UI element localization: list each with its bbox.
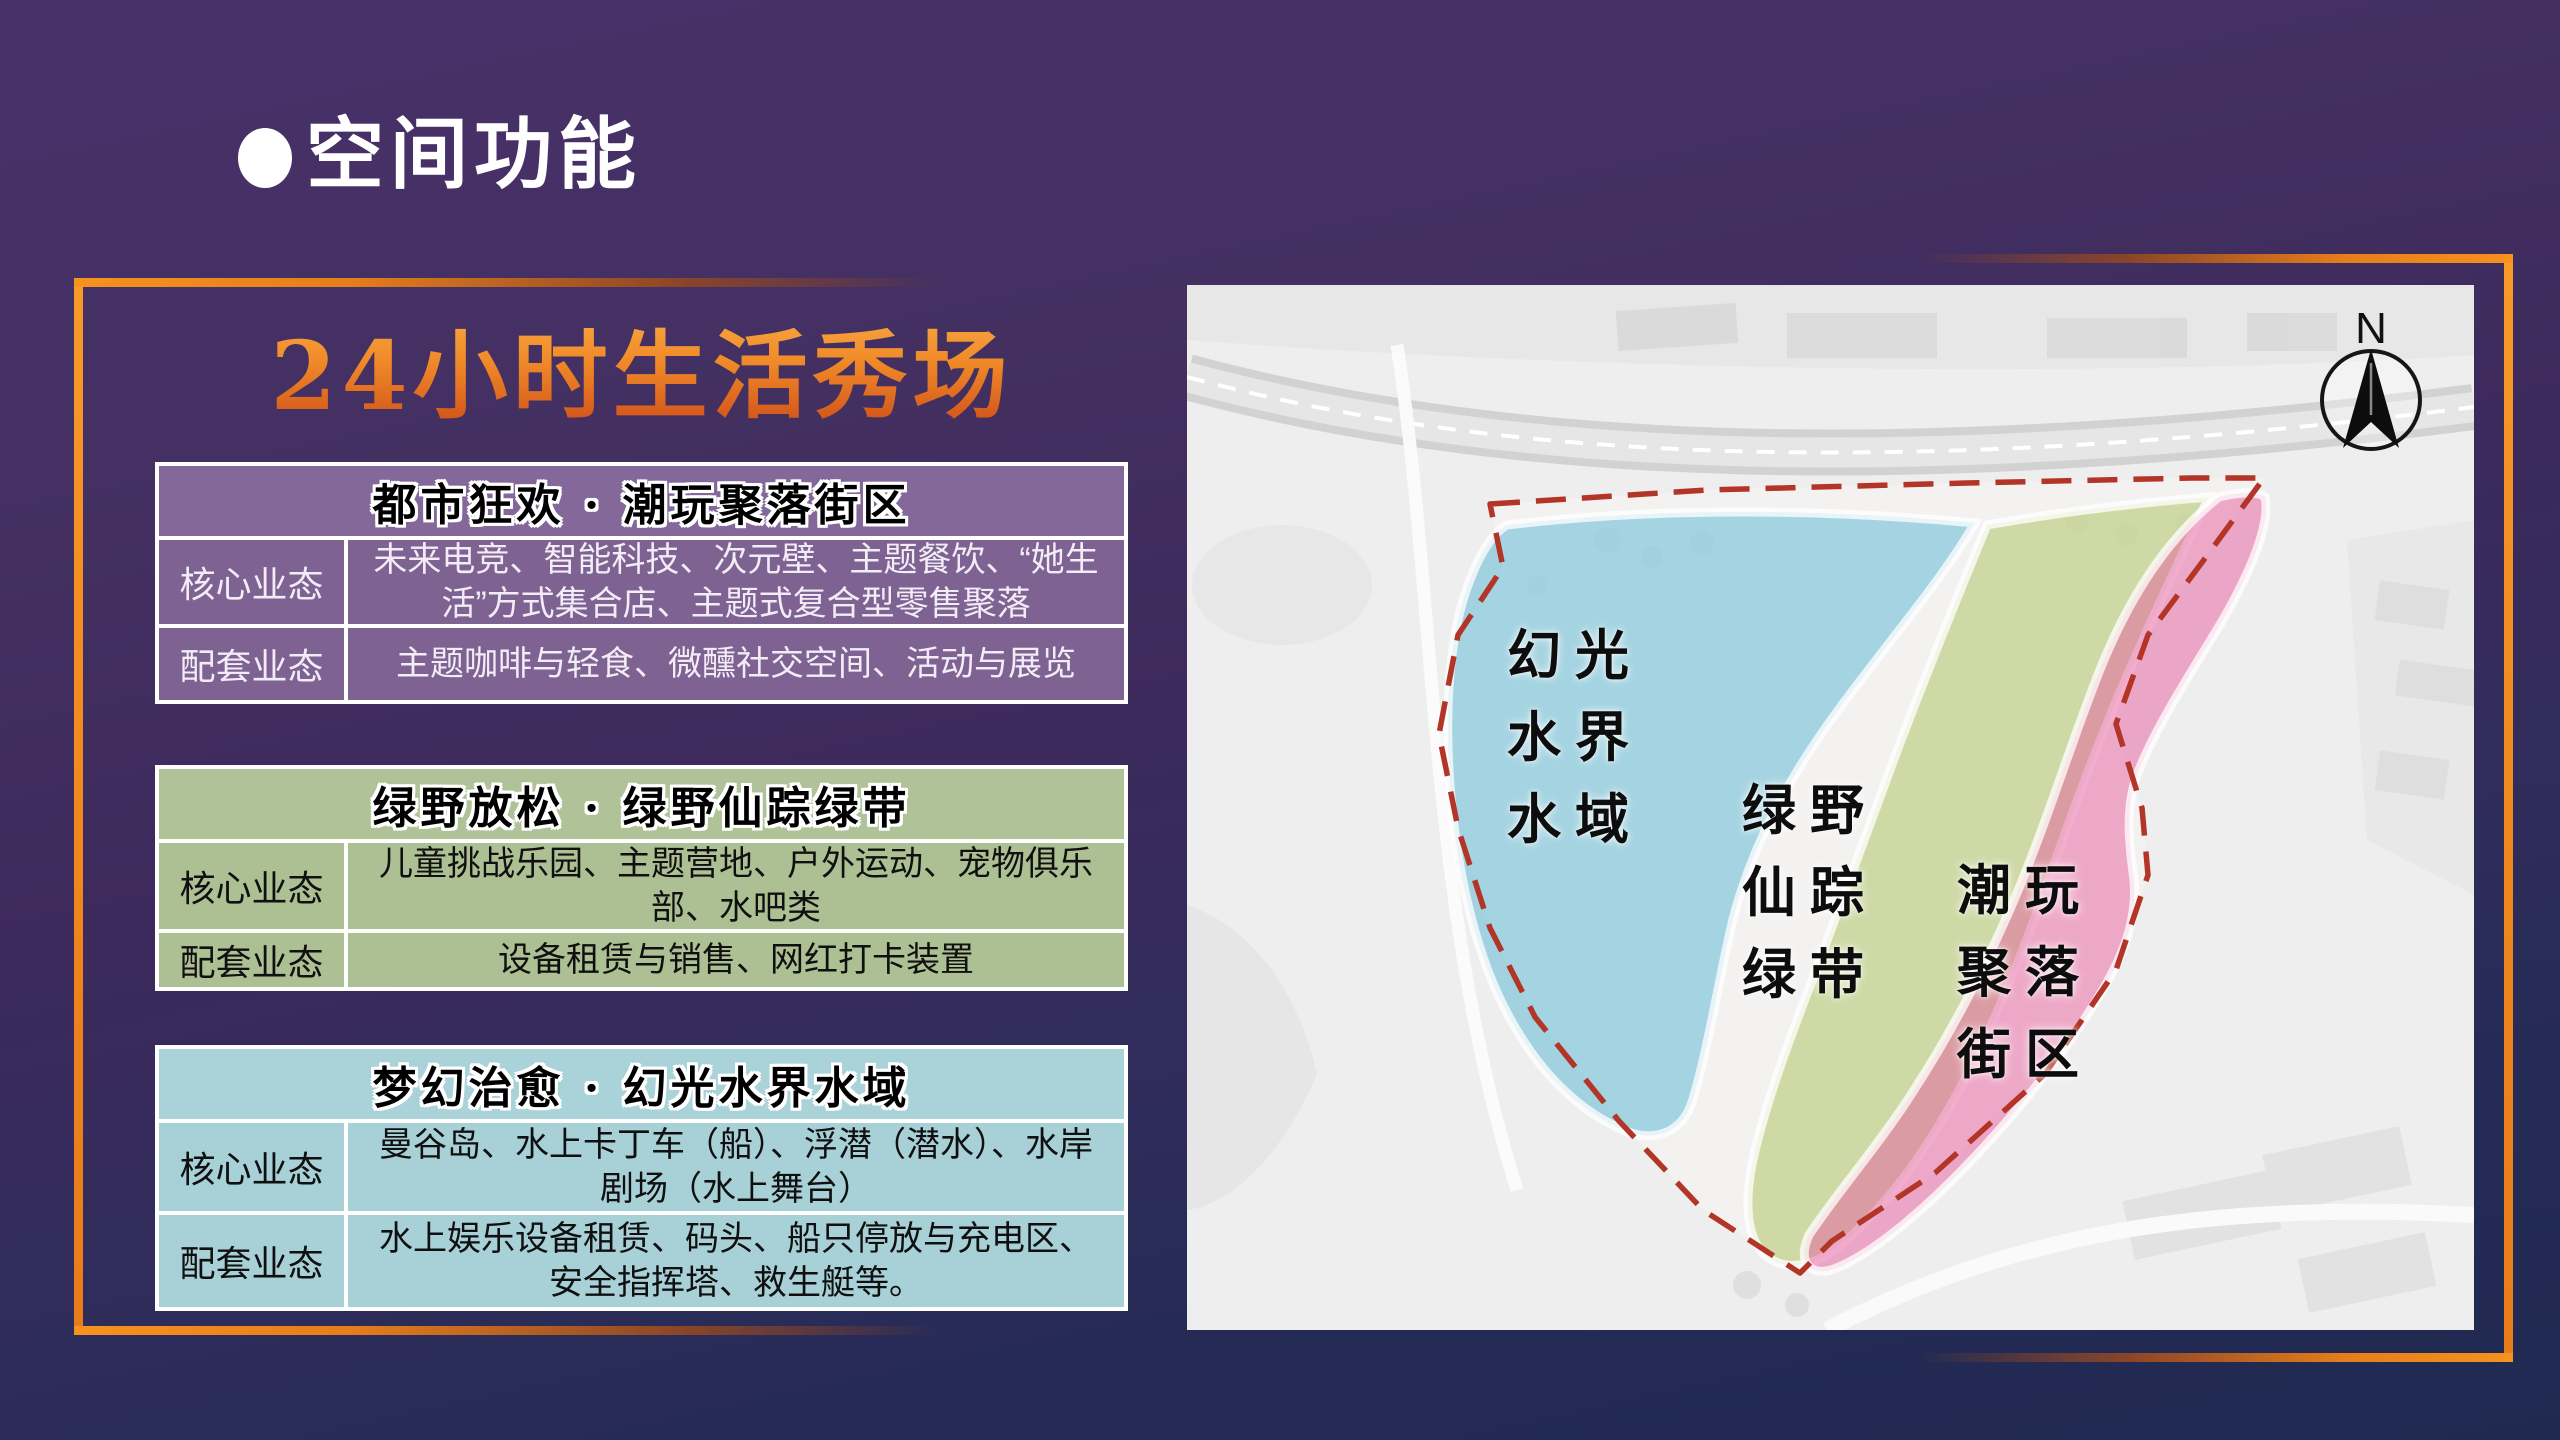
zone-label-line: 幻光 (1507, 614, 1643, 696)
row-label: 核心业态 (159, 540, 344, 624)
compass-north-label: N (2355, 304, 2387, 353)
frame-top-left-border (74, 278, 974, 287)
row-content: 主题咖啡与轻食、微醺社交空间、活动与展览 (348, 628, 1124, 700)
row-label: 配套业态 (159, 1215, 344, 1307)
frame-top-right-border (1920, 254, 2513, 263)
frame-bottom-right-border (1920, 1353, 2513, 1362)
row-content: 未来电竞、智能科技、次元壁、主题餐饮、“她生活”方式集合店、主题式复合型零售聚落 (348, 540, 1124, 624)
zone-label-water: 幻光 水界 水域 (1507, 614, 1643, 860)
frame-bottom-left-border (74, 1326, 974, 1335)
zone-label-line: 水域 (1507, 778, 1643, 860)
frame-left-border (74, 278, 83, 1335)
zone-label-line: 水界 (1507, 696, 1643, 778)
section-title: 空间功能 (306, 92, 642, 204)
row-label: 配套业态 (159, 628, 344, 700)
zone-label-green-belt: 绿野 仙踪 绿带 (1742, 769, 1878, 1015)
table-green-title: 绿野放松 · 绿野仙踪绿带 (159, 769, 1124, 839)
zone-label-line: 潮玩 (1957, 849, 2093, 931)
table-street-block: 都市狂欢 · 潮玩聚落街区 核心业态 未来电竞、智能科技、次元壁、主题餐饮、“她… (155, 462, 1128, 704)
zone-label-line: 街区 (1957, 1013, 2093, 1095)
row-content: 设备租赁与销售、网红打卡装置 (348, 933, 1124, 987)
bullet-icon (238, 128, 292, 188)
row-label: 配套业态 (159, 933, 344, 987)
row-content: 水上娱乐设备租赁、码头、船只停放与充电区、安全指挥塔、救生艇等。 (348, 1215, 1124, 1307)
map-patch-west (1192, 525, 1372, 645)
headline: 24小时生活秀场 (155, 300, 1128, 437)
zone-label-line: 绿野 (1742, 769, 1878, 851)
site-map: N 幻光 水界 水域 绿野 仙踪 绿带 潮玩 聚落 街区 (1187, 285, 2474, 1330)
table-water-zone: 梦幻治愈 · 幻光水界水域 核心业态 曼谷岛、水上卡丁车（船）、浮潜（潜水）、水… (155, 1045, 1128, 1311)
zone-label-line: 聚落 (1957, 931, 2093, 1013)
row-label: 核心业态 (159, 1123, 344, 1211)
row-label: 核心业态 (159, 843, 344, 929)
table-street-title: 都市狂欢 · 潮玩聚落街区 (159, 466, 1124, 536)
row-content: 曼谷岛、水上卡丁车（船）、浮潜（潜水）、水岸剧场（水上舞台） (348, 1123, 1124, 1211)
row-content: 儿童挑战乐园、主题营地、户外运动、宠物俱乐部、水吧类 (348, 843, 1124, 929)
frame-right-border (2504, 254, 2513, 1362)
table-water-title: 梦幻治愈 · 幻光水界水域 (159, 1049, 1124, 1119)
zone-label-street-block: 潮玩 聚落 街区 (1957, 849, 2093, 1095)
zone-label-line: 绿带 (1742, 933, 1878, 1015)
table-green-belt: 绿野放松 · 绿野仙踪绿带 核心业态 儿童挑战乐园、主题营地、户外运动、宠物俱乐… (155, 765, 1128, 991)
zone-label-line: 仙踪 (1742, 851, 1878, 933)
slide: { "slide": { "section_title": "空间功能", "h… (0, 0, 2560, 1440)
